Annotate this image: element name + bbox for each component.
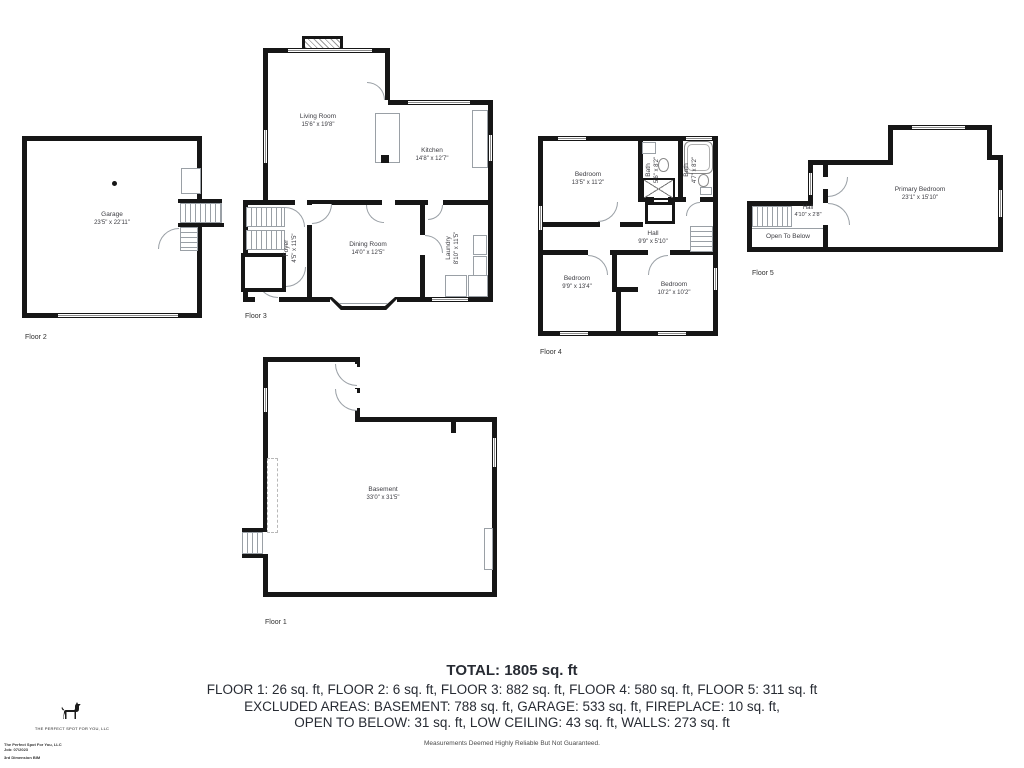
- wall: [385, 48, 390, 100]
- floor-plan-floor-5: Hall 4'10" x 2'8" Open To Below Primary …: [745, 115, 1010, 285]
- laundry-appliance: [473, 256, 487, 276]
- window: [658, 331, 686, 336]
- wall: [242, 554, 265, 558]
- wall: [808, 160, 893, 165]
- wall: [279, 297, 330, 302]
- stairs-icon: [246, 230, 285, 250]
- wall: [451, 422, 456, 433]
- window: [912, 125, 965, 130]
- kitchen-counter: [472, 110, 488, 168]
- sink-icon: [700, 187, 712, 195]
- garage-door: [58, 313, 178, 318]
- area-summary: TOTAL: 1805 sq. ft FLOOR 1: 26 sq. ft, F…: [0, 662, 1024, 747]
- low-ceiling-area: [267, 458, 278, 533]
- window: [288, 48, 372, 53]
- door-arc-icon: [425, 235, 443, 253]
- company-name-text: THE PERFECT SPOT FOR YOU, LLC: [26, 726, 118, 731]
- door-arc-icon: [367, 82, 385, 100]
- room-label-basement: Basement 33'0" x 31'5": [333, 485, 433, 502]
- door-arc-icon: [428, 205, 443, 220]
- open-to-below-edge: [752, 228, 823, 229]
- window: [808, 173, 813, 195]
- stairs-icon: [690, 226, 713, 252]
- room-label-hall-upper: Hall 4'10" x 2'8": [785, 204, 831, 220]
- kitchen-appliance: [445, 275, 467, 297]
- door-arc-icon: [335, 364, 357, 386]
- wall: [360, 417, 497, 422]
- floor-caption: Floor 2: [25, 334, 47, 341]
- stairs-icon: [242, 532, 265, 554]
- footer-line: 3rd Dimension BIM: [4, 755, 62, 760]
- window: [263, 130, 268, 163]
- footer-line: Job: 07/2023: [4, 747, 62, 752]
- company-logo: THE PERFECT SPOT FOR YOU, LLC: [26, 700, 118, 731]
- window: [263, 388, 268, 412]
- support-post-icon: [112, 181, 117, 186]
- stairs-icon: [246, 207, 285, 227]
- door-arc-icon: [335, 389, 357, 411]
- floorplan-page: Garage 23'5" x 22'11" Floor 2: [0, 0, 1024, 768]
- floor-plan-floor-2: Garage 23'5" x 22'11" Floor 2: [22, 136, 227, 346]
- room-label-living-room: Living Room 15'6" x 19'8": [278, 112, 358, 129]
- wall: [747, 247, 1003, 252]
- closet: [181, 168, 201, 194]
- dog-logo-icon: [59, 700, 85, 720]
- utility-fixture: [484, 528, 493, 570]
- room-label-laundry: Laundry 8'10" x 11'5": [444, 218, 460, 278]
- room-label-open-to-below: Open To Below: [753, 232, 823, 241]
- wall: [700, 197, 716, 202]
- door-arc-icon: [828, 203, 850, 225]
- room-label-dining-room: Dining Room 14'0" x 12'5": [328, 240, 408, 257]
- room-label-bedroom-2: Bedroom 9'9" x 13'4": [537, 274, 617, 291]
- toilet-icon: [698, 174, 709, 187]
- window: [560, 331, 588, 336]
- floor-plan-floor-1: Basement 33'0" x 31'5" Floor 1: [235, 350, 510, 632]
- room-label-bedroom-3: Bedroom 10'2" x 10'2": [634, 280, 714, 297]
- wall: [263, 357, 360, 362]
- room-label-bath-1: Bath 5'6" x 8'2": [644, 150, 660, 190]
- stairs-icon: [180, 227, 198, 251]
- floor-plan-floor-4: Bedroom 13'5" x 11'2" Bath 5'6" x 8'2" B…: [530, 130, 725, 362]
- wall: [616, 292, 621, 336]
- wall: [420, 200, 425, 235]
- window: [339, 303, 388, 304]
- window: [998, 190, 1003, 217]
- closet: [645, 202, 675, 224]
- wall: [263, 48, 268, 205]
- wall: [823, 225, 828, 252]
- kitchen-fixture: [381, 155, 389, 163]
- floor-caption: Floor 3: [245, 313, 267, 320]
- window: [488, 135, 493, 161]
- disclaimer-text: Measurements Deemed Highly Reliable But …: [0, 740, 1024, 747]
- footer-credits: The Perfect Spot For You, LLC Job: 07/20…: [4, 742, 62, 760]
- window: [492, 438, 497, 467]
- closet: [241, 253, 286, 292]
- wall: [420, 255, 425, 302]
- window: [538, 206, 543, 230]
- laundry-appliance: [473, 235, 487, 255]
- wall: [243, 200, 295, 205]
- room-label-kitchen: Kitchen 14'8" x 12'7": [392, 146, 472, 163]
- floor-plan-floor-3: Living Room 15'6" x 19'8" Kitchen 14'8" …: [240, 30, 505, 325]
- room-label-foyer: Foyer 4'5" x 11'5": [282, 218, 298, 278]
- wall: [243, 297, 255, 302]
- wall: [443, 200, 493, 205]
- floor-caption: Floor 4: [540, 349, 562, 356]
- wall: [888, 125, 893, 165]
- window: [408, 100, 470, 105]
- excluded-areas-text: EXCLUDED AREAS: BASEMENT: 788 sq. ft, GA…: [0, 699, 1024, 716]
- room-label-hall: Hall 9'9" x 5'10": [623, 229, 683, 246]
- floor-areas-text: FLOOR 1: 26 sq. ft, FLOOR 2: 6 sq. ft, F…: [0, 682, 1024, 699]
- wall: [538, 250, 588, 255]
- door-arc-icon: [312, 204, 332, 224]
- kitchen-appliance: [468, 275, 488, 297]
- room-label-primary-bedroom: Primary Bedroom 23'1" x 15'10": [870, 185, 970, 202]
- bay-window-icon: [332, 297, 395, 306]
- door-opening: [263, 532, 268, 554]
- door-arc-icon: [828, 177, 848, 197]
- floor-caption: Floor 5: [752, 270, 774, 277]
- room-label-garage: Garage 23'5" x 22'11": [22, 210, 202, 227]
- room-label-bath-2: Bath 4'7" x 8'2": [682, 150, 698, 190]
- wall: [307, 225, 312, 302]
- window: [558, 136, 586, 141]
- door-arc-icon: [366, 205, 384, 223]
- total-area-text: TOTAL: 1805 sq. ft: [0, 662, 1024, 679]
- wall: [620, 222, 643, 227]
- wall: [538, 222, 600, 227]
- floor-caption: Floor 1: [265, 619, 287, 626]
- window: [686, 136, 712, 141]
- wall: [263, 592, 497, 597]
- excluded-areas-text-2: OPEN TO BELOW: 31 sq. ft, LOW CEILING: 4…: [0, 715, 1024, 732]
- window: [432, 297, 468, 302]
- wall: [823, 165, 828, 177]
- room-label-bedroom-1: Bedroom 13'5" x 11'2": [548, 170, 628, 187]
